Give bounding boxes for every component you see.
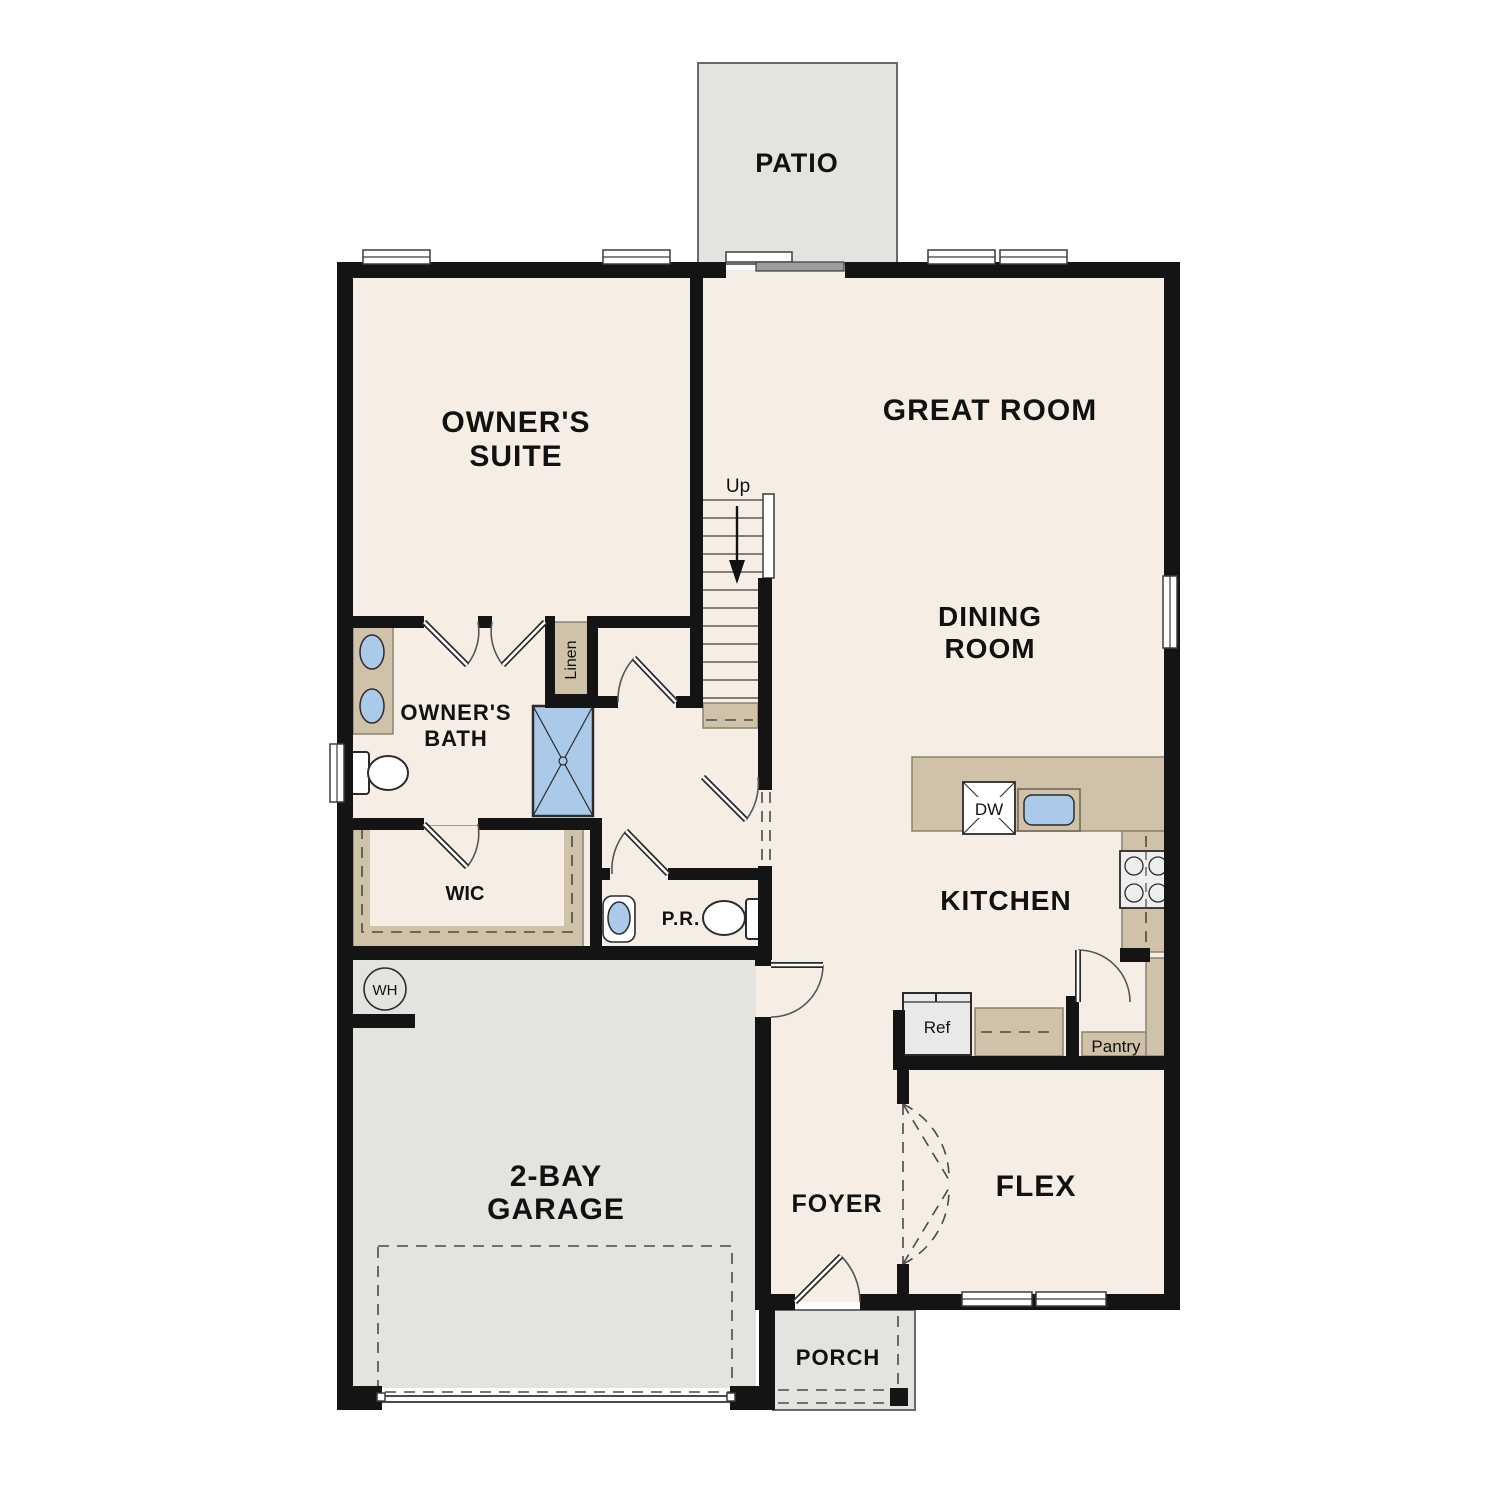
dishwasher: DW (963, 782, 1015, 834)
flex-label: FLEX (996, 1170, 1077, 1203)
shower-drain (559, 757, 567, 765)
water-heater: WH (364, 968, 406, 1010)
bath-toilet (351, 752, 408, 794)
linen-label: Linen (563, 640, 580, 679)
water-heater-label: WH (373, 982, 398, 999)
stair-handrail (763, 494, 774, 578)
stairs-up-label: Up (726, 476, 750, 497)
refrigerator-label: Ref (924, 1018, 951, 1037)
garage-label-line1: 2-BAY (510, 1160, 602, 1193)
shower (533, 706, 593, 816)
foyer-label: FOYER (791, 1190, 882, 1218)
garage-label-line2: GARAGE (487, 1193, 625, 1226)
floor-plan-svg: DW Ref WH (0, 0, 1500, 1500)
porch-post (890, 1388, 908, 1406)
porch-label: PORCH (796, 1345, 880, 1370)
patio-label: PATIO (755, 148, 839, 178)
pantry-label: Pantry (1091, 1037, 1141, 1056)
owners-bath-label-line1: OWNER'S (400, 700, 511, 725)
powder-room-label: P.R. (662, 909, 701, 930)
kitchen-label: KITCHEN (940, 885, 1071, 916)
powder-room-sink (603, 896, 635, 942)
floor-plan-page: DW Ref WH (0, 0, 1500, 1500)
great-room-label: GREAT ROOM (883, 394, 1097, 427)
dishwasher-label: DW (975, 800, 1003, 819)
dining-room-label-line2: ROOM (944, 633, 1035, 664)
kitchen-counter-lower (975, 1008, 1063, 1056)
kitchen-sink (1018, 789, 1080, 831)
garage-door (377, 1393, 735, 1402)
refrigerator: Ref (903, 993, 971, 1055)
wic-label: WIC (446, 883, 485, 905)
owners-suite-label-line2: SUITE (469, 440, 562, 473)
dining-room-label-line1: DINING (938, 601, 1042, 632)
powder-room-toilet (703, 899, 763, 939)
owners-suite-label-line1: OWNER'S (441, 406, 590, 439)
owners-bath-label-line2: BATH (424, 726, 487, 751)
understair-storage (703, 703, 758, 728)
